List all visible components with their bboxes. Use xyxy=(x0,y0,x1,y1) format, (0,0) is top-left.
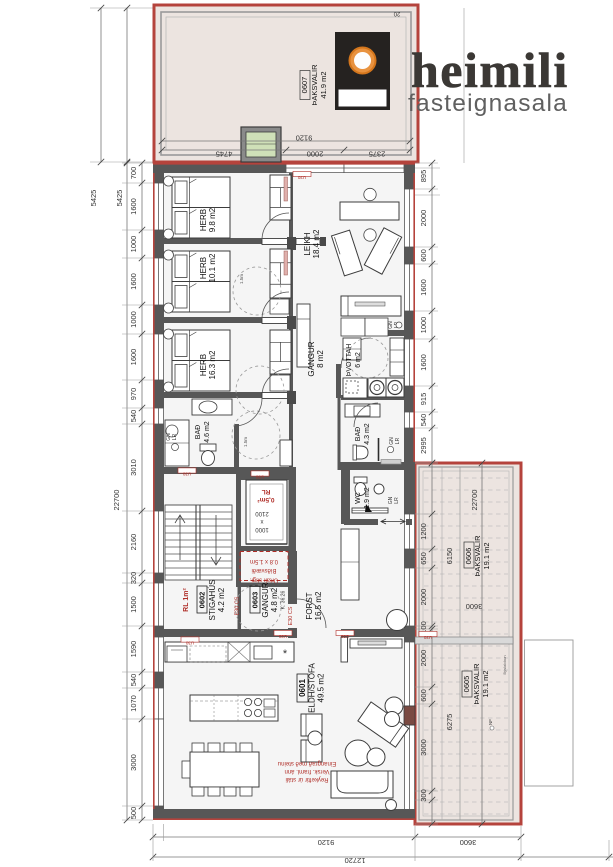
svg-text:20: 20 xyxy=(393,10,400,16)
svg-text:41.9 m2: 41.9 m2 xyxy=(319,71,328,98)
svg-text:E30 CS: E30 CS xyxy=(288,606,294,625)
svg-text:300: 300 xyxy=(419,789,428,802)
svg-text:0605: 0605 xyxy=(462,676,471,693)
svg-text:1500: 1500 xyxy=(129,596,138,613)
svg-text:Reykeftir úr stáli: Reykeftir úr stáli xyxy=(285,776,328,782)
svg-text:2000: 2000 xyxy=(307,150,324,159)
svg-text:540: 540 xyxy=(419,414,428,427)
svg-text:HERB: HERB xyxy=(199,209,208,231)
svg-text:1600: 1600 xyxy=(129,198,138,215)
svg-text:WC: WC xyxy=(355,492,362,504)
svg-text:U30: U30 xyxy=(185,640,194,645)
svg-text:6275: 6275 xyxy=(445,714,454,731)
svg-text:ÞAKSVALIR: ÞAKSVALIR xyxy=(472,663,481,705)
svg-text:915: 915 xyxy=(419,393,428,406)
svg-text:GANGUR: GANGUR xyxy=(307,341,316,376)
svg-text:49.5 m2: 49.5 m2 xyxy=(317,673,326,702)
svg-text:8 m2: 8 m2 xyxy=(316,350,325,368)
svg-text:RL: RL xyxy=(262,488,271,495)
svg-text:3000: 3000 xyxy=(419,739,428,756)
svg-text:U30: U30 xyxy=(255,474,264,479)
svg-text:320: 320 xyxy=(129,572,138,585)
svg-text:0606: 0606 xyxy=(464,548,473,565)
svg-text:16.5 m2: 16.5 m2 xyxy=(314,591,323,620)
svg-text:18.4 m2: 18.4 m2 xyxy=(312,229,321,258)
svg-text:1600: 1600 xyxy=(419,354,428,371)
svg-text:600: 600 xyxy=(419,249,428,262)
svg-text:x: x xyxy=(261,518,264,524)
svg-text:1.5m: 1.5m xyxy=(243,437,248,447)
svg-text:600: 600 xyxy=(419,689,428,702)
svg-text:9120: 9120 xyxy=(318,838,335,847)
svg-text:22700: 22700 xyxy=(470,490,479,511)
svg-text:4.3 m2: 4.3 m2 xyxy=(364,423,371,445)
svg-text:4.6 m2: 4.6 m2 xyxy=(204,421,211,443)
svg-text:16.3 m2: 16.3 m2 xyxy=(208,350,217,379)
svg-text:LR: LR xyxy=(395,437,401,444)
svg-text:FORST: FORST xyxy=(305,592,314,619)
svg-text:Einangrað með steinu: Einangrað með steinu xyxy=(278,760,336,767)
svg-text:10.1 m2: 10.1 m2 xyxy=(208,253,217,282)
svg-text:1000: 1000 xyxy=(129,236,138,253)
svg-text:ÞAKSVALIR: ÞAKSVALIR xyxy=(473,535,482,577)
svg-text:0601: 0601 xyxy=(298,679,307,697)
svg-text:Bíðsvæði: Bíðsvæði xyxy=(251,567,276,574)
svg-text:E30 CS: E30 CS xyxy=(235,596,241,615)
svg-text:5425: 5425 xyxy=(89,190,98,207)
svg-text:4.8 m2: 4.8 m2 xyxy=(270,587,279,612)
svg-text:9.8 m2: 9.8 m2 xyxy=(208,207,217,232)
svg-text:2995: 2995 xyxy=(419,437,428,454)
svg-text:6150: 6150 xyxy=(445,548,454,565)
svg-text:U30: U30 xyxy=(278,634,287,639)
svg-text:4745: 4745 xyxy=(216,150,233,159)
svg-text:1070: 1070 xyxy=(129,695,138,712)
svg-text:3600: 3600 xyxy=(460,838,477,847)
svg-text:2000: 2000 xyxy=(419,589,428,606)
svg-text:BAÐ: BAÐ xyxy=(355,427,362,441)
svg-text:895: 895 xyxy=(419,170,428,183)
svg-text:fasteignasala: fasteignasala xyxy=(408,90,568,117)
svg-text:1000: 1000 xyxy=(129,311,138,328)
svg-text:0607: 0607 xyxy=(300,77,309,94)
svg-text:U30: U30 xyxy=(423,635,432,640)
svg-text:K: 36:26: K: 36:26 xyxy=(281,590,287,609)
svg-text:1000: 1000 xyxy=(419,317,428,334)
svg-text:LR: LR xyxy=(394,497,400,504)
svg-text:1.9 m2: 1.9 m2 xyxy=(364,487,371,509)
svg-text:BAÐ: BAÐ xyxy=(195,425,202,439)
svg-text:5425: 5425 xyxy=(115,190,124,207)
svg-text:2000: 2000 xyxy=(419,210,428,227)
svg-text:650: 650 xyxy=(419,552,428,565)
svg-text:0.8 x 1.5m: 0.8 x 1.5m xyxy=(250,558,278,564)
svg-text:HERB: HERB xyxy=(199,257,208,279)
svg-text:ÞVOTTAH: ÞVOTTAH xyxy=(346,344,353,377)
svg-text:12720: 12720 xyxy=(345,856,366,865)
svg-text:3010: 3010 xyxy=(129,459,138,476)
svg-text:1.5m: 1.5m xyxy=(239,274,244,284)
svg-text:ÞAKSVALIR: ÞAKSVALIR xyxy=(310,64,319,106)
svg-text:1590: 1590 xyxy=(129,641,138,658)
svg-text:U30: U30 xyxy=(340,634,349,639)
svg-text:0602: 0602 xyxy=(198,592,207,609)
svg-text:1600: 1600 xyxy=(129,349,138,366)
svg-text:0,5m²: 0,5m² xyxy=(257,496,275,503)
svg-text:2375: 2375 xyxy=(369,150,386,159)
svg-text:U30: U30 xyxy=(182,471,191,476)
svg-text:9120: 9120 xyxy=(296,134,313,143)
svg-text:LR: LR xyxy=(172,433,178,440)
svg-text:970: 970 xyxy=(129,388,138,401)
svg-text:1000: 1000 xyxy=(255,526,269,532)
svg-text:2100: 2100 xyxy=(255,510,269,516)
svg-text:NF: NF xyxy=(488,719,493,725)
svg-text:*: * xyxy=(283,648,288,660)
svg-text:Versk. framl. ánn: Versk. framl. ánn xyxy=(284,768,329,774)
svg-text:2160: 2160 xyxy=(129,534,138,551)
svg-text:1200: 1200 xyxy=(419,523,428,540)
svg-text:3600: 3600 xyxy=(466,602,483,611)
svg-text:700: 700 xyxy=(129,167,138,180)
svg-text:3000: 3000 xyxy=(129,754,138,771)
svg-text:GANGUR: GANGUR xyxy=(261,582,270,617)
svg-text:U30: U30 xyxy=(297,175,306,180)
svg-text:500: 500 xyxy=(129,807,138,820)
svg-text:1600: 1600 xyxy=(419,279,428,296)
svg-text:6 m2: 6 m2 xyxy=(355,352,362,368)
svg-text:RL 1m²: RL 1m² xyxy=(183,588,190,612)
svg-text:2000: 2000 xyxy=(419,650,428,667)
svg-text:STIGAHÚS: STIGAHÚS xyxy=(208,580,217,621)
svg-text:ELDH/STOFA: ELDH/STOFA xyxy=(308,663,317,713)
svg-text:540: 540 xyxy=(129,674,138,687)
svg-text:Býslalckun: Býslalckun xyxy=(502,655,507,674)
svg-text:1600: 1600 xyxy=(129,273,138,290)
svg-text:0603: 0603 xyxy=(251,592,260,609)
svg-text:22700: 22700 xyxy=(112,490,121,511)
svg-text:HERB: HERB xyxy=(199,354,208,376)
svg-text:LEIKH: LEIKH xyxy=(303,232,312,255)
svg-text:540: 540 xyxy=(129,410,138,423)
svg-text:19.1 m2: 19.1 m2 xyxy=(482,542,491,569)
svg-text:4.2 m2: 4.2 m2 xyxy=(217,587,226,612)
